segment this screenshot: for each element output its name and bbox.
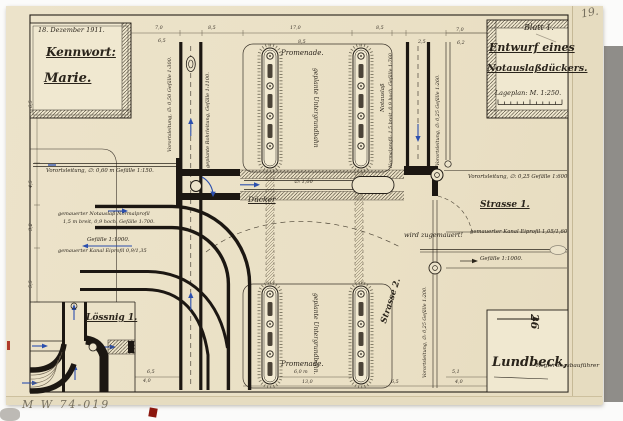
- dimension-label: 7,0: [155, 27, 163, 32]
- red-archive-mark: [7, 341, 10, 350]
- dimension-label: 4,5: [30, 180, 35, 188]
- kanal-eiprofil-right-label: gemauerter Kanal Eiprofil 1,05/1,60: [470, 230, 567, 235]
- vorortsleitung-025-600-label: Vorortsleitung, ∅: 0,25 Gefälle 1:600.: [468, 175, 569, 180]
- strasse1-label: Strasse 1.: [480, 201, 530, 210]
- untergrundbahn-label-bottom: geplante Untergrundbahn.: [312, 293, 318, 375]
- scan-smudge: [0, 408, 20, 421]
- duecker-diameter-label: ∅: 1,00: [294, 180, 313, 185]
- dimension-label: 4,0: [143, 380, 151, 385]
- drawing-title-line2: Notauslaßdückers.: [487, 64, 569, 74]
- inset-title: Lössnig 1.: [86, 314, 137, 323]
- dimension-label: 6,5: [158, 40, 166, 45]
- signature-role: Regierungsbauführer: [536, 364, 599, 370]
- kennwort-value: Marie.: [44, 72, 91, 85]
- street-crossing-bands: [266, 172, 363, 284]
- notauslass-profile-line2: 1,5 m breit, 0,9 hoch, Gefälle 1:700.: [63, 220, 155, 225]
- gefaelle-left-label: Gefälle 1:1000.: [87, 238, 130, 244]
- vorortsleitung-060-label: Vorortsleitung, ∅: 0,60 m Gefälle 1:150.: [46, 169, 154, 174]
- scale-label: Lageplan: M. 1:250.: [489, 90, 567, 97]
- archive-number: M W 74-019: [22, 399, 110, 410]
- corner-dashed-curve: [438, 196, 472, 232]
- normalprofil-label: Normalprofil: 1,5 breit, 0,9 hoch, Gefäl…: [390, 52, 395, 168]
- sheet-number: Blatt 1.: [524, 24, 554, 32]
- drawing-date: 18. Dezember 1911.: [38, 27, 105, 34]
- wird-zugemauert-label: wird zugemauert!: [404, 232, 463, 239]
- dimension-label: 8,5: [208, 27, 216, 32]
- dimension-label: 6,5: [30, 100, 35, 108]
- drawing-title-line1: Entwurf eines: [489, 42, 567, 53]
- vorortsleitung-025-200-label: Vorortsleitung, ∅: 0,25 Gefälle 1:200.: [424, 286, 429, 378]
- dimension-label: 8,5: [298, 41, 306, 46]
- stamp-number: 26: [529, 314, 540, 329]
- geplante-rohrleitung-label: geplante Rohrleitung, Gefälle 1:1100.: [206, 72, 211, 168]
- dimension-label: 17,0: [290, 27, 301, 32]
- dimension-label: 5,1: [452, 371, 460, 376]
- dimension-label: 6,2: [457, 42, 465, 47]
- gefaelle-right-label: Gefälle 1:1000.: [480, 257, 523, 263]
- strasse1-lines: [420, 171, 567, 269]
- notauslass-profile-line1: gemauerter Notauslaß Normalprofil: [58, 212, 150, 217]
- left-street-channel: [181, 42, 201, 390]
- vorortsleitung-025-260-label: Vorortsleitung, ∅: 0,25 Gefälle 1:260.: [437, 74, 442, 166]
- red-stamp-mark: [148, 407, 157, 417]
- dimension-label: 4,0: [455, 381, 463, 386]
- notauslass-pipe: [95, 206, 250, 390]
- right-street-channel-bottom: [429, 200, 441, 388]
- kanal-eiprofil-left-label: gemauerter Kanal Eiprofil 0,9/1,35: [58, 249, 147, 254]
- pencil-page-number: 19.: [580, 6, 599, 20]
- dimension-label: 5,5: [30, 280, 35, 288]
- notauslass-vertical-label: Notauslaß: [381, 83, 387, 112]
- dimension-label: 2,5: [418, 41, 426, 46]
- promenade-label-top: Promenade.: [281, 50, 324, 57]
- right-street-channel-top: [404, 42, 451, 196]
- dimension-label: 3,2: [30, 223, 35, 231]
- vorortsleitung-050-label: Vorortsleitung, ∅: 0,50 Gefälle 1:300.: [168, 57, 173, 152]
- dimension-label: 6,0 m: [294, 371, 308, 376]
- dimension-label: 6,5: [391, 381, 399, 386]
- dimension-label: 8,5: [376, 27, 384, 32]
- dimension-label: 6,5: [147, 371, 155, 376]
- dimension-label: 7,0: [456, 29, 464, 34]
- duecker-label: Dücker: [248, 196, 276, 204]
- dimension-label: 13,0: [302, 381, 313, 386]
- scanned-drawing-sheet: 19. M W 74-019 18. Dezember 1911. Kennwo…: [0, 0, 623, 421]
- kennwort-label: Kennwort:: [46, 46, 116, 58]
- untergrundbahn-label-top: geplante Untergrundbahn: [312, 68, 318, 148]
